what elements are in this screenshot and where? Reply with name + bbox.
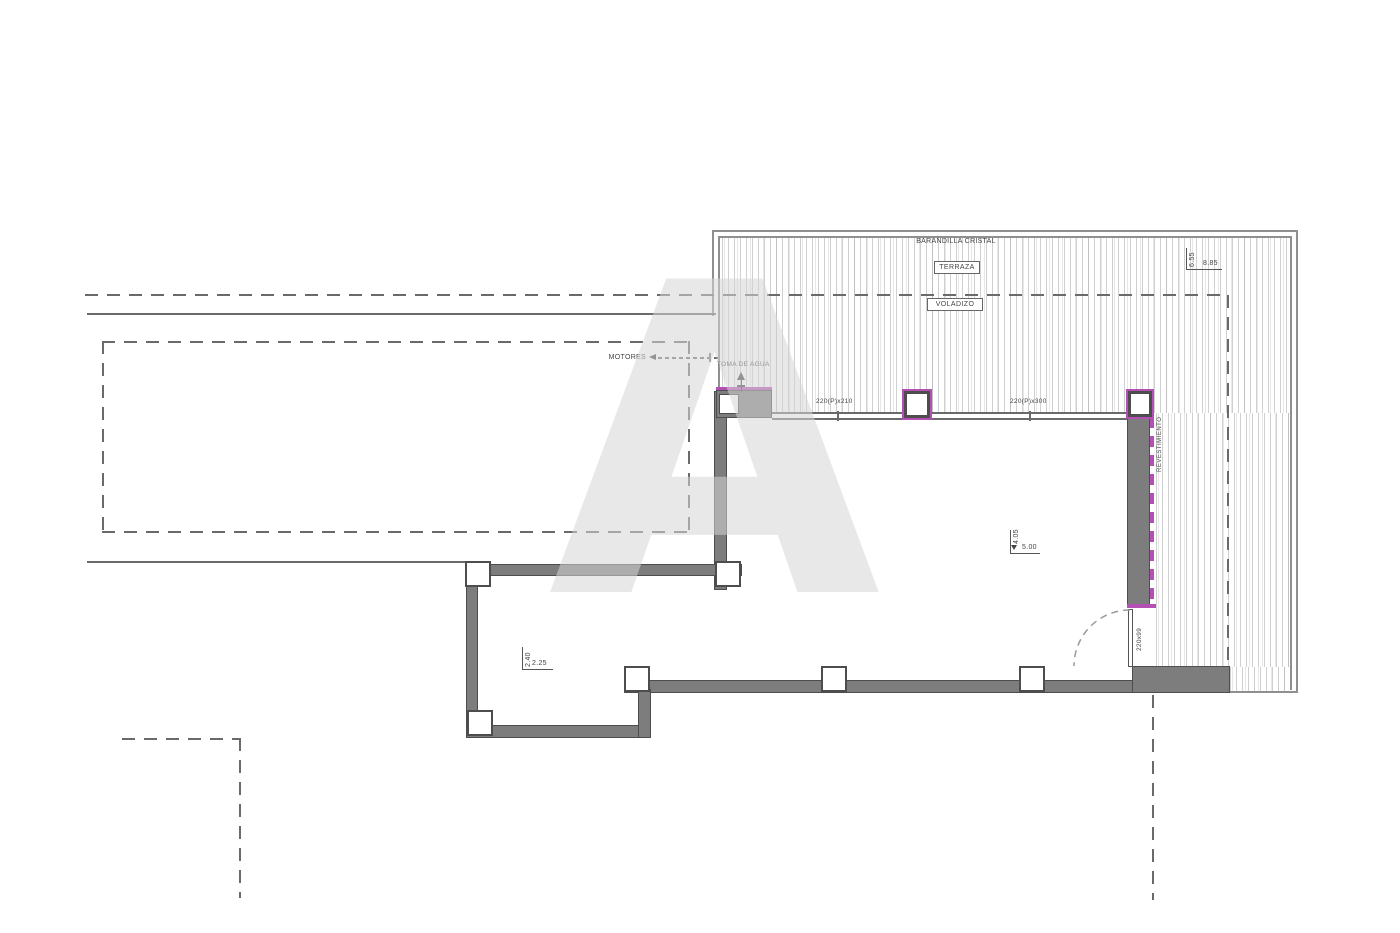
pool-outline-left	[102, 341, 104, 533]
column	[467, 710, 493, 736]
door-dim: 220x99	[1137, 628, 1144, 651]
room-width-dim: 5.00	[1022, 544, 1037, 551]
column	[715, 561, 741, 587]
small-room-bottom-wall	[466, 725, 651, 738]
window-left-mullion	[837, 411, 839, 421]
terrace-deck-hatch-right	[1156, 413, 1289, 667]
motores-label: MOTORES	[560, 354, 646, 361]
terrace-boundary-bottom	[1230, 691, 1298, 693]
toma-de-agua-arrow-bar	[737, 385, 745, 387]
terrace-height-dim: 6.55	[1189, 252, 1196, 267]
terrace-dim-vertical-line	[1186, 248, 1187, 270]
voladizo-label: VOLADIZO	[927, 298, 983, 311]
terrace-boundary-right-inner	[1290, 236, 1292, 690]
terrace-boundary-left-inner	[718, 236, 720, 392]
terrace-boundary-top-outer	[712, 230, 1298, 232]
setback-line-upper	[87, 313, 716, 315]
axis-dashed-line-bottom-right	[1152, 695, 1154, 900]
door-swing-arc	[1073, 609, 1131, 667]
voladizo-dashed-line-vertical	[1227, 295, 1229, 663]
pool-outline-bottom	[102, 531, 690, 533]
window-right-dim: 220(P)x300	[1010, 399, 1047, 406]
floor-plan-canvas: BARANDILLA CRISTAL TERRAZA VOLADIZO 6.55…	[0, 0, 1400, 933]
window-left-dim: 220(P)x210	[816, 399, 853, 406]
plot-dashed-corner-horizontal	[122, 738, 241, 740]
clad-wall-right	[1127, 417, 1150, 607]
bottom-wall-long	[624, 680, 1134, 693]
terrace-boundary-left-outer	[712, 230, 714, 316]
small-room-top-wall	[466, 564, 742, 576]
column	[624, 666, 650, 692]
terraza-label: TERRAZA	[934, 261, 980, 274]
small-room-dim-horizontal-line	[522, 669, 553, 670]
column	[465, 561, 491, 587]
terrace-deck-hatch-right-low	[1230, 667, 1289, 691]
site-boundary-dashed-line	[85, 294, 1228, 296]
corner-column-core	[719, 394, 739, 414]
column	[821, 666, 847, 692]
toma-de-agua-label: TOMA DE AGUA	[717, 362, 770, 369]
window-right-mullion	[1029, 411, 1031, 421]
room-dim-arrow	[1011, 545, 1017, 550]
motores-arrow-icon	[649, 354, 656, 360]
pool-outline-right	[688, 341, 690, 533]
pillar-top-right	[1126, 389, 1154, 419]
room-height-dim: 4.05	[1013, 529, 1020, 544]
revestimiento-label: REVESTIMIENTO	[1157, 417, 1163, 472]
pool-outline-top	[102, 341, 690, 343]
clad-wall-accent-bottom	[1127, 604, 1156, 608]
room-dim-horizontal-line	[1010, 553, 1040, 554]
plot-dashed-corner-vertical	[239, 738, 241, 898]
toma-de-agua-arrow-icon	[737, 372, 745, 380]
terrace-width-dim: 8.85	[1203, 260, 1218, 267]
bottom-wall-right-section	[1132, 666, 1230, 693]
small-room-dim-vertical-line	[522, 647, 523, 670]
small-room-right-wall	[638, 689, 651, 738]
room-dim-vertical-line	[1010, 530, 1011, 554]
column	[1019, 666, 1045, 692]
corner-column-accent-edge	[716, 387, 772, 390]
barandilla-cristal-label: BARANDILLA CRISTAL	[896, 238, 1016, 245]
pillar-middle	[902, 389, 932, 420]
small-room-width-dim: 2.25	[532, 660, 547, 667]
terrace-dim-horizontal-line	[1186, 269, 1222, 270]
terrace-boundary-right-outer	[1296, 230, 1298, 693]
motores-leader-tick	[709, 353, 711, 362]
clad-wall-accent-dashes	[1150, 417, 1154, 605]
setback-line-mid	[87, 561, 467, 563]
small-room-height-dim: 2.40	[525, 652, 532, 667]
